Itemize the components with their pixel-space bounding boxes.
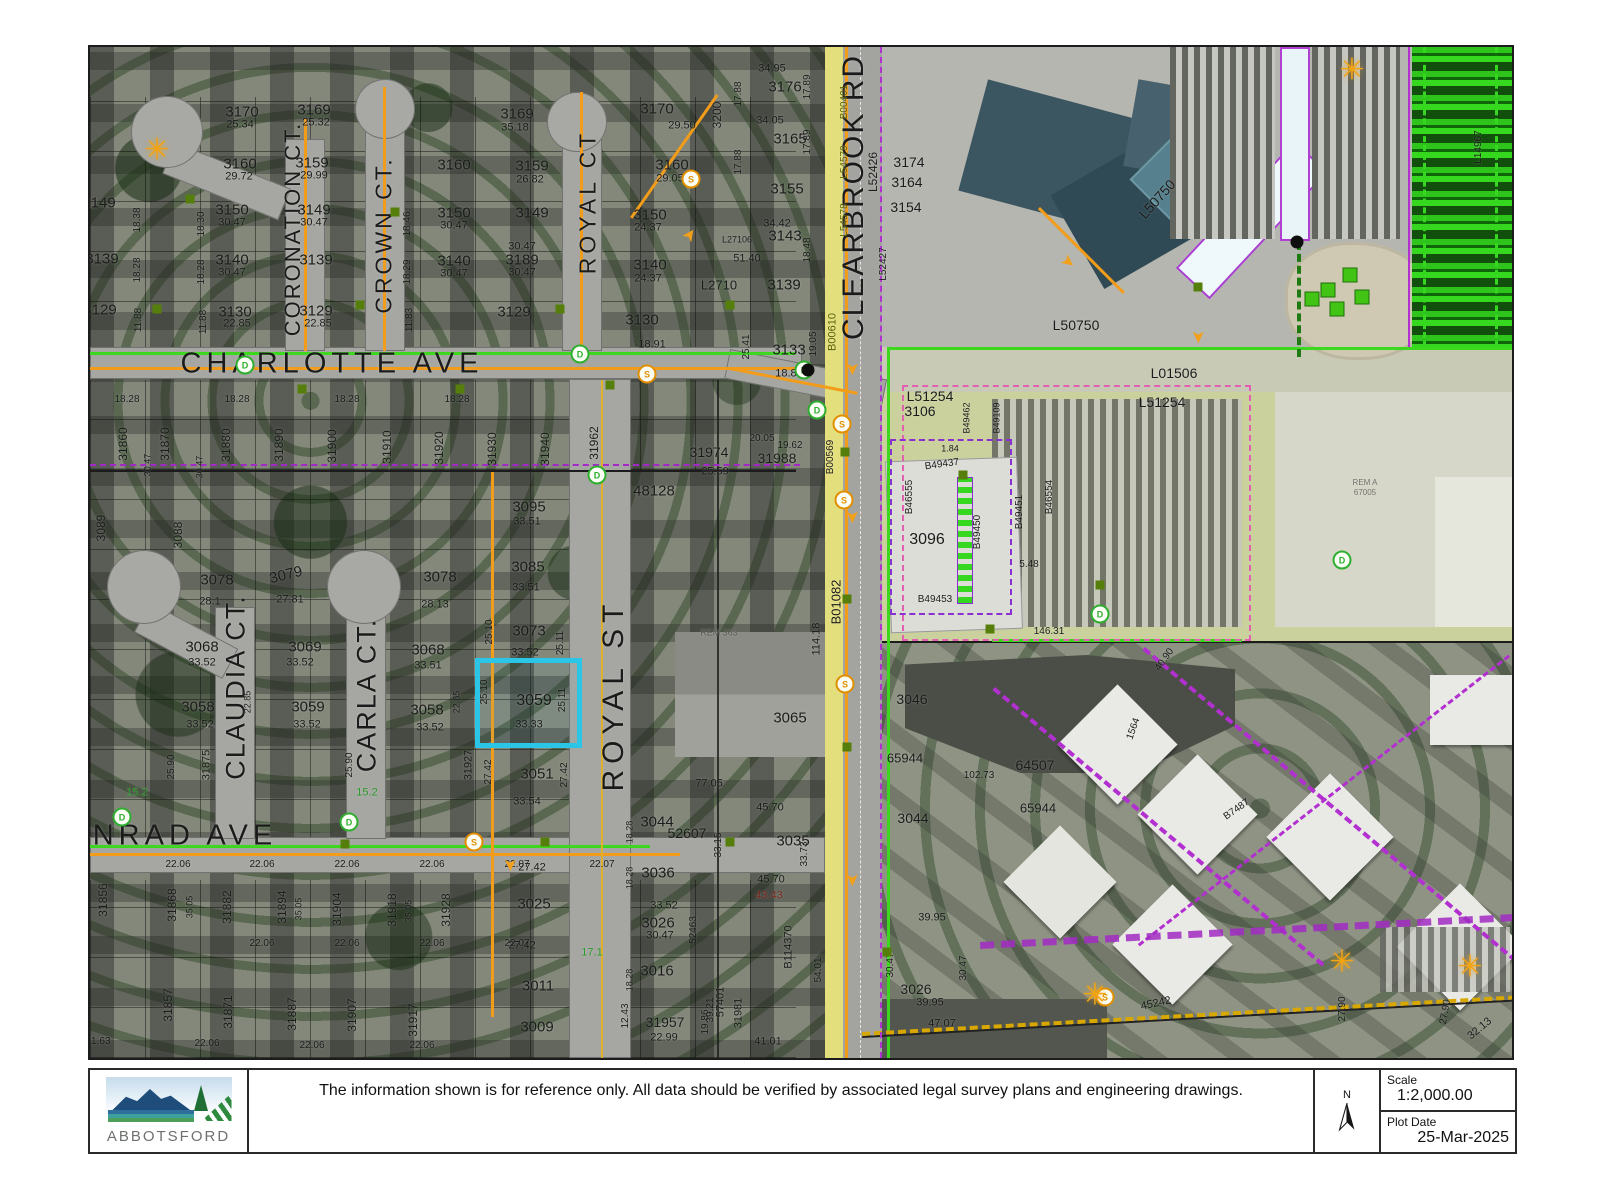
valve-icon xyxy=(391,208,400,217)
valve-icon xyxy=(726,301,735,310)
abbotsford-logo-icon xyxy=(106,1077,232,1125)
flow-arrow-icon: ➤ xyxy=(678,223,703,246)
valve-icon xyxy=(356,301,365,310)
flow-arrow-icon: ➤ xyxy=(500,858,520,872)
drain-manhole-icon: D xyxy=(588,466,607,485)
north-arrow-cell: N xyxy=(1315,1070,1381,1152)
valve-icon xyxy=(843,595,852,604)
map-canvas: CHARLOTTE AVENRAD AVECLEARBROOK RDROYAL … xyxy=(88,45,1514,1060)
valve-icon xyxy=(959,471,968,480)
disclaimer-text: The information shown is for reference o… xyxy=(319,1082,1243,1100)
valve-icon xyxy=(883,948,892,957)
park-feature-icon xyxy=(1355,290,1370,305)
sanitary-manhole-icon: S xyxy=(836,675,855,694)
logo-mountain-icon xyxy=(112,1089,192,1111)
streetlight-icon: ✳ xyxy=(1329,945,1354,980)
plot-date-row: Plot Date 25-Mar-2025 xyxy=(1381,1112,1515,1152)
valve-icon xyxy=(186,195,195,204)
valve-icon xyxy=(843,743,852,752)
drain-manhole-icon: D xyxy=(571,345,590,364)
drain-manhole-icon: D xyxy=(808,401,827,420)
drain-manhole-icon: D xyxy=(236,356,255,375)
north-arrow-icon xyxy=(1336,1101,1358,1133)
junction-dot-icon xyxy=(802,364,815,377)
flow-arrow-icon: ➤ xyxy=(842,873,862,887)
valve-icon xyxy=(841,448,850,457)
sanitary-manhole-icon: S xyxy=(465,833,484,852)
disclaimer-cell: The information shown is for reference o… xyxy=(249,1070,1315,1152)
valve-icon xyxy=(341,840,350,849)
map-symbols-layer: DDDDDDDDDSSSSSSS✳✳✳✳✳➤➤➤➤➤➤➤ xyxy=(90,47,1512,1058)
valve-icon xyxy=(298,385,307,394)
logo-tree-icon xyxy=(194,1085,208,1111)
logo-stripes-icon xyxy=(108,1110,194,1122)
valve-icon xyxy=(1194,283,1203,292)
streetlight-icon: ✳ xyxy=(1457,950,1482,985)
valve-icon xyxy=(556,305,565,314)
scale-label: Scale xyxy=(1387,1073,1509,1087)
scale-cell: Scale 1:2,000.00 Plot Date 25-Mar-2025 xyxy=(1381,1070,1515,1152)
plot-date-value: 25-Mar-2025 xyxy=(1387,1129,1509,1147)
park-feature-icon xyxy=(1305,292,1320,307)
streetlight-icon: ✳ xyxy=(1339,53,1364,88)
sanitary-manhole-icon: S xyxy=(638,365,657,384)
flow-arrow-icon: ➤ xyxy=(842,362,862,376)
plot-sheet: CHARLOTTE AVENRAD AVECLEARBROOK RDROYAL … xyxy=(0,0,1600,1200)
logo-wordmark: ABBOTSFORD xyxy=(107,1128,230,1145)
scale-value: 1:2,000.00 xyxy=(1397,1087,1509,1105)
sanitary-manhole-icon: S xyxy=(835,491,854,510)
flow-arrow-icon: ➤ xyxy=(842,510,862,524)
valve-icon xyxy=(1096,581,1105,590)
plot-date-label: Plot Date xyxy=(1387,1115,1509,1129)
drain-manhole-icon: D xyxy=(1333,551,1352,570)
valve-icon xyxy=(726,838,735,847)
sanitary-manhole-icon: S xyxy=(833,415,852,434)
drain-manhole-icon: D xyxy=(340,813,359,832)
valve-icon xyxy=(606,381,615,390)
park-feature-icon xyxy=(1343,268,1358,283)
drain-manhole-icon: D xyxy=(1091,605,1110,624)
valve-icon xyxy=(986,625,995,634)
junction-dot-icon xyxy=(1291,236,1304,249)
valve-icon xyxy=(541,838,550,847)
flow-arrow-icon: ➤ xyxy=(1188,330,1208,344)
footer-bar: ABBOTSFORD The information shown is for … xyxy=(88,1068,1517,1154)
streetlight-icon: ✳ xyxy=(1082,978,1107,1013)
valve-icon xyxy=(153,305,162,314)
park-feature-icon xyxy=(1321,283,1336,298)
north-label: N xyxy=(1343,1089,1351,1101)
valve-icon xyxy=(456,385,465,394)
scale-row: Scale 1:2,000.00 xyxy=(1381,1070,1515,1112)
park-feature-icon xyxy=(1330,302,1345,317)
logo-cell: ABBOTSFORD xyxy=(90,1070,249,1152)
sanitary-manhole-icon: S xyxy=(682,170,701,189)
drain-manhole-icon: D xyxy=(113,808,132,827)
streetlight-icon: ✳ xyxy=(144,133,169,168)
flow-arrow-icon: ➤ xyxy=(1056,250,1080,275)
